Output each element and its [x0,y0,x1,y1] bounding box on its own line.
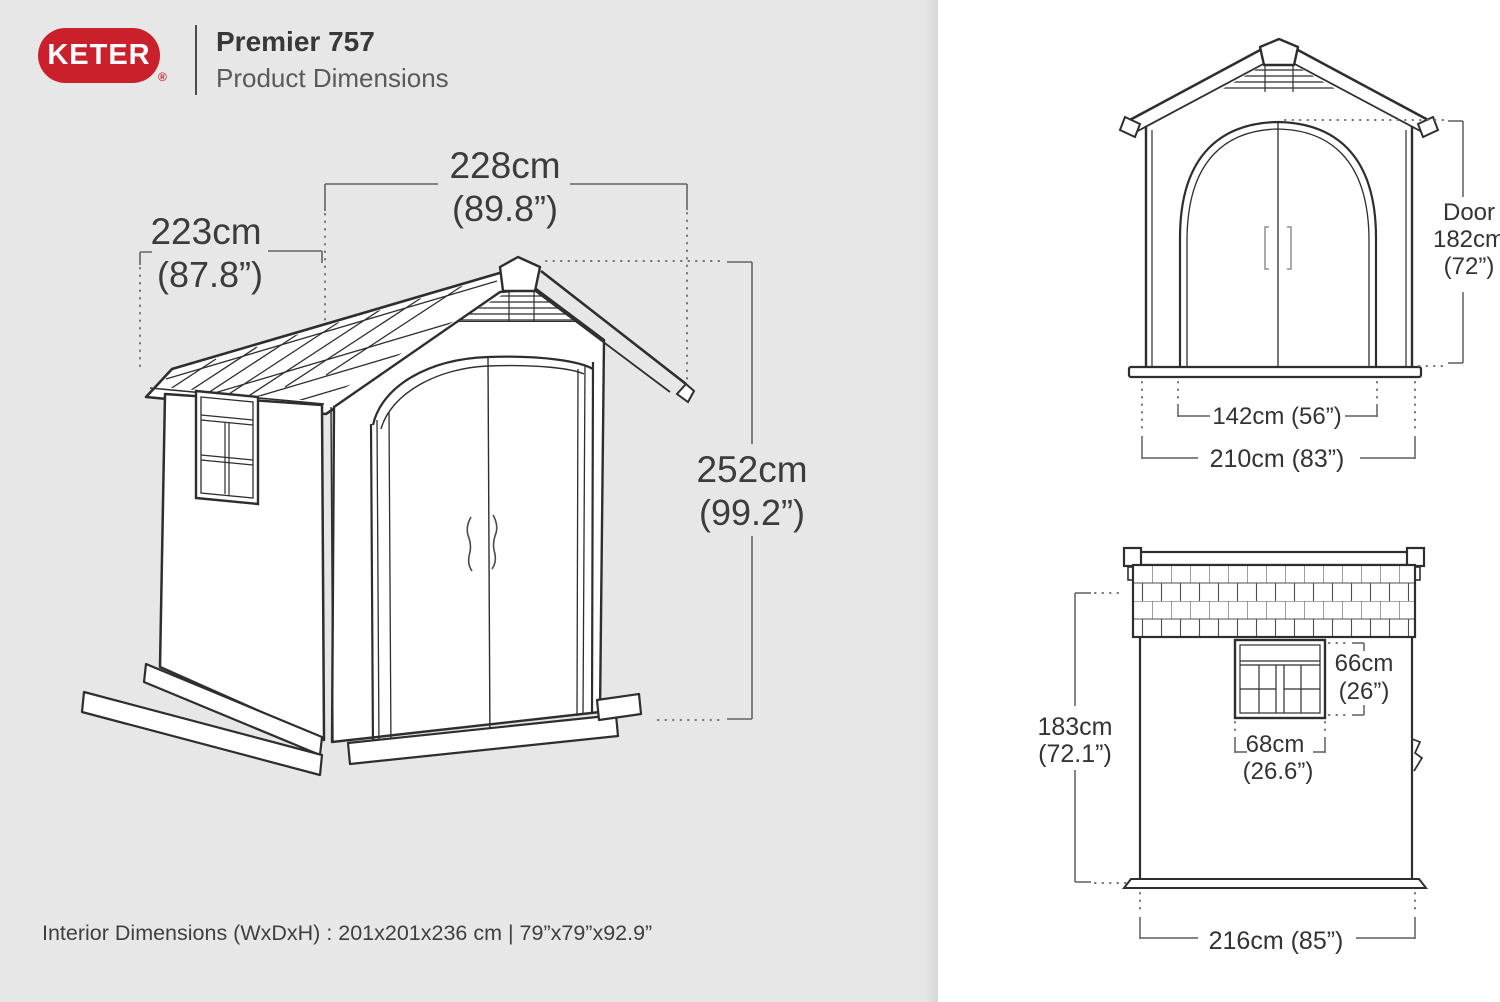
keter-logo-text: KETER [47,39,150,72]
door-width-dimension: 142cm (56”) [1177,403,1377,431]
page-title: Premier 757 [216,26,375,58]
side-base [1124,879,1426,888]
side-window [196,391,258,504]
front-base [1129,367,1421,377]
front-doors [1180,122,1376,367]
width-dimension-cm: 228cm [405,145,605,187]
width-dimension-in: (89.8”) [405,188,605,230]
window-height-in: (26”) [1314,678,1414,706]
wall-height-cm: 183cm [1023,713,1127,742]
keter-logo: KETER [38,28,160,83]
page-subtitle: Product Dimensions [216,63,449,94]
elevation-extension-dotted-lines [1095,120,1445,915]
side-roof-shingles [1133,565,1415,637]
height-dimension-in: (99.2”) [652,492,852,534]
window-width-cm: 68cm [1225,731,1325,759]
front-door-handle-right [1287,227,1291,269]
side-window [1235,640,1325,718]
roof-apex-cap [500,257,540,291]
side-elevation [1124,548,1426,888]
header-divider [195,25,197,95]
front-walls [1146,126,1412,367]
depth-dimension-in: (87.8”) [110,254,310,296]
door-height-cm: 182cm [1419,226,1500,254]
window-height-cm: 66cm [1314,650,1414,678]
height-dimension-cm: 252cm [652,449,852,491]
registered-trademark-mark: ® [158,70,167,84]
wall-height-in: (72.1”) [1023,740,1127,769]
door-label: Door [1419,199,1500,227]
overall-width-dimension: 210cm (83”) [1177,445,1377,474]
door-height-in: (72”) [1419,253,1500,281]
front-apex-cap [1260,39,1298,65]
depth-dimension-cm: 223cm [106,211,306,253]
window-width-in: (26.6”) [1228,758,1328,786]
elevation-dimension-lines [1075,121,1463,939]
overall-depth-dimension: 216cm (85”) [1176,927,1376,956]
front-elevation [1120,39,1438,377]
front-door-handle-left [1265,227,1269,269]
shed-elevation-drawings [938,0,1500,1002]
interior-dimensions-text: Interior Dimensions (WxDxH) : 201x201x23… [42,921,652,946]
